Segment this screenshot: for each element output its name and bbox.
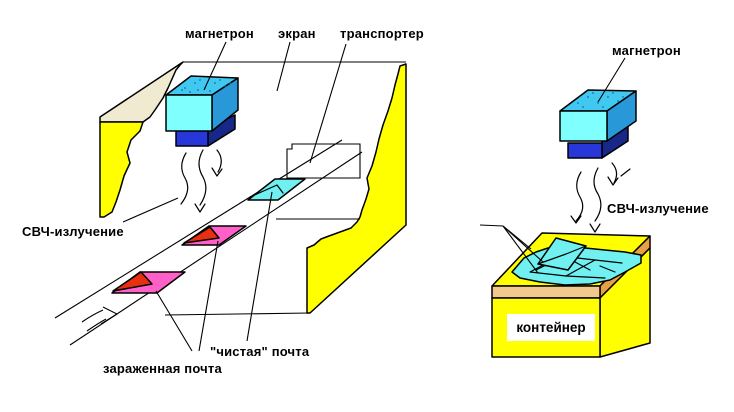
- magnetron-front-face: [166, 95, 212, 131]
- label-infected-mail: зараженная почта: [103, 361, 222, 376]
- label-magnetron-left: магнетрон: [185, 26, 254, 41]
- radiation-waves-left: [181, 150, 222, 212]
- label-clean-mail: "чистая" почта: [210, 344, 309, 359]
- left-diagram: [55, 42, 406, 351]
- wave-line: [594, 168, 601, 221]
- wave-line: [181, 153, 188, 204]
- mail-on-belt: [112, 179, 305, 293]
- infected-envelope-1: [112, 272, 185, 293]
- wave-line: [199, 150, 206, 205]
- wave-tick: [621, 169, 630, 176]
- magnetron-right: [560, 90, 636, 158]
- magnetron-left: [166, 76, 238, 146]
- pointer-infected-mail-1: [156, 291, 192, 351]
- magnetron-front-face: [560, 111, 607, 141]
- label-radiation-left: СВЧ-излучение: [22, 224, 124, 239]
- label-container: контейнер: [507, 314, 595, 341]
- belt-direction-arrow: [82, 307, 117, 331]
- label-screen: экран: [278, 26, 316, 41]
- label-magnetron-right: магнетрон: [612, 43, 681, 58]
- left-wall-yellow: [100, 122, 143, 217]
- pointer-clean-mail: [247, 192, 272, 341]
- label-radiation-right: СВЧ-излучение: [607, 201, 709, 216]
- magnetron-horn-front: [176, 130, 208, 146]
- chamber-floor-edge: [165, 313, 310, 315]
- wave-line: [576, 172, 583, 221]
- radiation-waves-right: [571, 163, 630, 232]
- wave-line: [217, 150, 221, 172]
- wave-arrowhead: [212, 168, 222, 176]
- pointer-radiation-left: [123, 198, 178, 222]
- clean-envelope: [248, 179, 305, 200]
- pointer-screen: [277, 42, 290, 91]
- magnetron-horn-front: [568, 143, 602, 158]
- container-rim-front: [492, 286, 600, 298]
- label-conveyor: транспортер: [340, 26, 424, 41]
- microwave-mail-disinfection-diagram: магнетрон экран транспортер СВЧ-излучени…: [0, 0, 734, 412]
- right-wall-yellow: [307, 64, 406, 313]
- wave-arrowhead: [590, 224, 600, 232]
